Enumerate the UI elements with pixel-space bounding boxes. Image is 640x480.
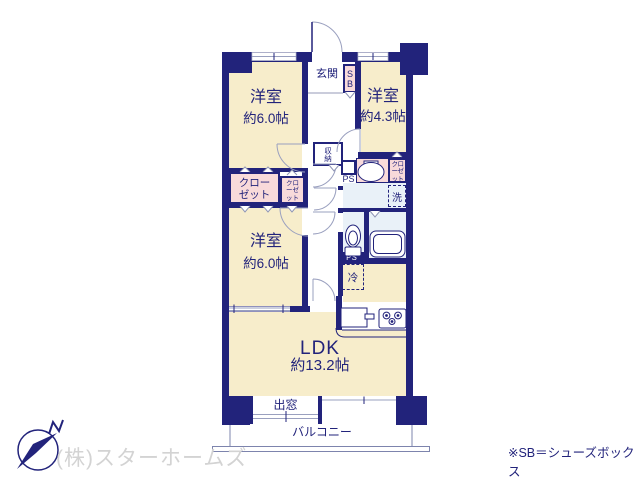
ldk-size: 約13.2帖: [270, 357, 370, 374]
bedroom-sw-size: 約6.0帖: [226, 256, 306, 272]
bathroom-floor: [369, 212, 406, 258]
balcony-label: バルコニー: [282, 426, 362, 440]
pipe-space-lower-box: PS: [338, 252, 365, 263]
refrigerator-label: 冷: [348, 270, 359, 285]
pipe-space-lower-label: PS: [346, 253, 357, 262]
wall-hall-right-3: [338, 210, 343, 213]
refrigerator-box: 冷: [342, 264, 364, 290]
storage-label: 収納: [323, 147, 334, 162]
kitchen-counter: [342, 302, 406, 330]
closet-right-label: クローゼット: [390, 161, 405, 183]
sb-footnote: ※SB＝シューズボックス: [508, 442, 640, 480]
floorplan-canvas: クローゼット クローゼット クローゼット SB 収納 PS 洗 PS 冷 出窓 …: [0, 0, 640, 480]
closet-large-box: クローゼット: [229, 172, 280, 204]
closet-small-label: クローゼット: [283, 180, 302, 202]
bedroom-nw-size: 約6.0帖: [226, 111, 306, 127]
bay-window-box: 出窓: [249, 396, 322, 424]
bedroom-ne-name: 洋室: [343, 88, 423, 106]
ldk-window-band: [322, 396, 396, 404]
closet-small-box: クローゼット: [280, 176, 305, 204]
closet-right-box: クローゼット: [388, 158, 407, 183]
washbasin-area: [356, 158, 389, 183]
closet-large-label: クローゼット: [237, 177, 272, 201]
storage-box: 収納: [313, 142, 343, 166]
bedroom-sw-name: 洋室: [226, 233, 306, 251]
laundry-label: 洗: [392, 189, 402, 204]
wall-hall-right-2: [338, 186, 343, 190]
wall-sw-bottom: [222, 306, 310, 312]
bay-window-label: 出窓: [253, 399, 318, 413]
wall-washroom-bottom: [338, 208, 407, 212]
bedroom-nw-name: 洋室: [226, 89, 306, 107]
pipe-space-upper-label: PS: [338, 174, 359, 184]
wall-hall-right-4: [338, 232, 343, 253]
shoe-box-label: SB: [345, 69, 355, 89]
bedroom-ne-size: 約4.3帖: [343, 109, 423, 125]
pipe-space-upper-box: [341, 160, 356, 175]
laundry-box: 洗: [388, 185, 406, 207]
wall-corner-br: [396, 396, 427, 425]
wall-closet-bottom: [229, 204, 308, 208]
wall-corner-tr: [400, 43, 428, 75]
company-watermark: (株)スターホームズ: [56, 442, 247, 472]
genkan-label: 玄関: [310, 68, 344, 81]
room-bedroom-ne: [361, 62, 406, 152]
wall-kitchen-stub: [336, 296, 342, 330]
wall-corner-bl: [222, 396, 250, 425]
